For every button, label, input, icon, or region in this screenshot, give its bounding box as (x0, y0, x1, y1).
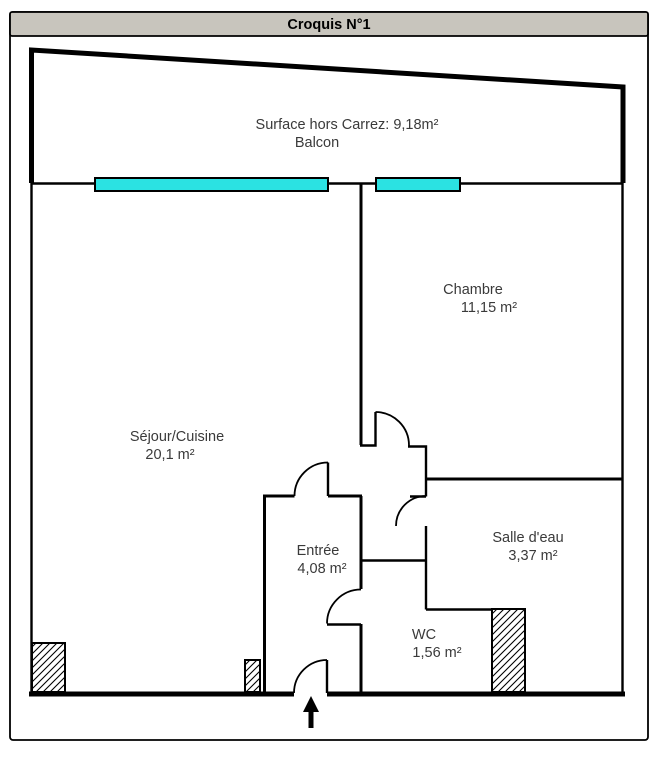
column-hatch-wc (492, 609, 525, 692)
croquis-page: Croquis N°1 (0, 0, 658, 758)
column-hatch-entree (245, 660, 260, 692)
room-label-chambre: Chambre (443, 282, 503, 298)
chambre-door-arc (376, 412, 410, 446)
chambre-door-jamb (408, 447, 426, 480)
floor-plan-svg: Croquis N°1 (0, 0, 658, 758)
room-area-wc: 1,56 m² (412, 645, 461, 661)
balcony-surface-label: Surface hors Carrez: 9,18m² (256, 117, 439, 133)
entrance-door-arc (294, 660, 327, 693)
room-area-salledeau: 3,37 m² (508, 548, 557, 564)
room-label-sejour: Séjour/Cuisine (130, 429, 224, 445)
entrance-arrow-icon (303, 696, 319, 728)
window-1 (95, 178, 328, 191)
column-hatch-southwest (32, 643, 65, 692)
room-label-wc: WC (412, 627, 436, 643)
salledeau-door-jamb (410, 479, 426, 497)
balcony-name-label: Balcon (295, 135, 339, 151)
entree-door-arc (294, 463, 328, 497)
window-2 (376, 178, 460, 191)
salledeau-door-arc (396, 496, 426, 526)
room-label-entree: Entrée (297, 543, 340, 559)
room-area-entree: 4,08 m² (297, 561, 346, 577)
room-area-sejour: 20,1 m² (145, 447, 194, 463)
room-label-salledeau: Salle d'eau (492, 530, 563, 546)
page-title: Croquis N°1 (287, 17, 370, 33)
room-area-chambre: 11,15 m² (461, 300, 517, 316)
wc-door-arc (327, 590, 361, 624)
